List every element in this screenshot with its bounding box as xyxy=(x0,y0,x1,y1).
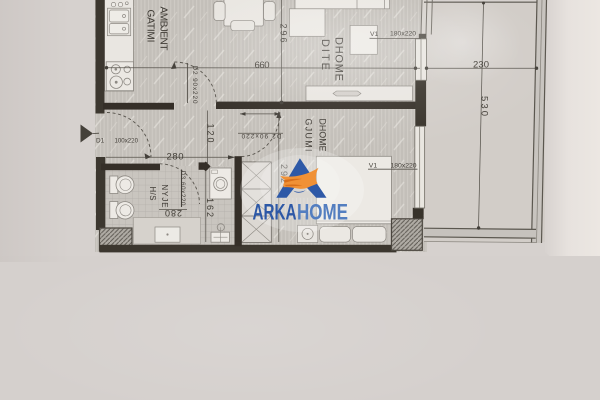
svg-text:280: 280 xyxy=(167,151,184,162)
svg-text:V1: V1 xyxy=(369,162,378,169)
svg-text:GATIMI: GATIMI xyxy=(144,10,155,43)
svg-text:D1: D1 xyxy=(96,138,105,145)
svg-text:HOME: HOME xyxy=(297,200,348,225)
svg-text:120: 120 xyxy=(206,124,216,143)
svg-text:ARKA: ARKA xyxy=(253,200,297,225)
svg-text:H/S: H/S xyxy=(148,187,157,201)
svg-text:280: 280 xyxy=(165,208,182,218)
svg-text:NYJE: NYJE xyxy=(160,185,169,208)
svg-text:162: 162 xyxy=(205,198,215,217)
svg-text:100x220: 100x220 xyxy=(115,138,139,145)
svg-text:D3 60x220: D3 60x220 xyxy=(179,171,186,207)
svg-text:180x220: 180x220 xyxy=(391,162,417,169)
